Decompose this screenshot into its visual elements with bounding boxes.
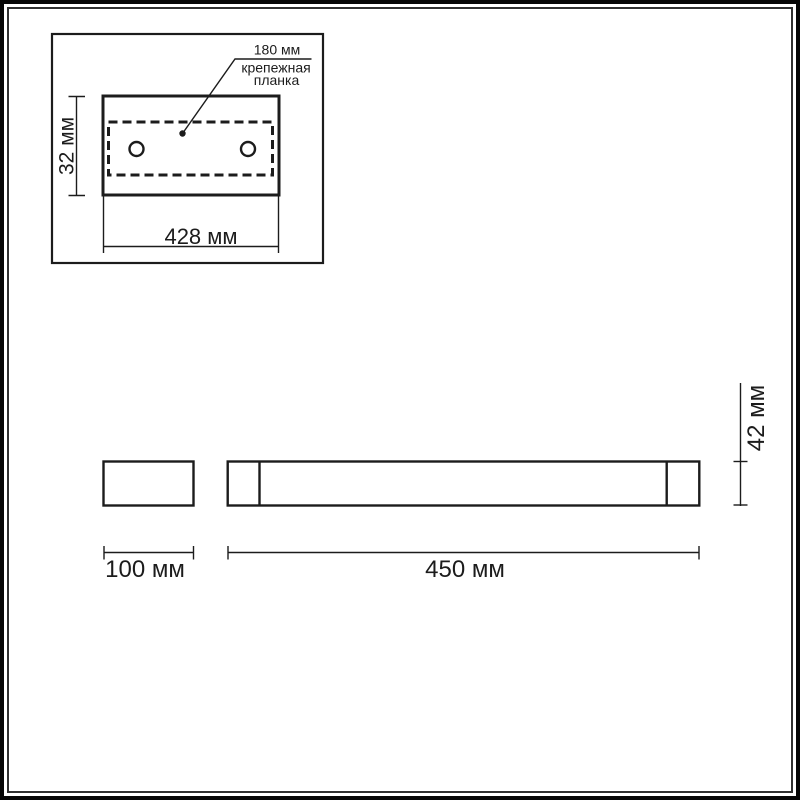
dim-32mm: 32 мм: [56, 97, 86, 196]
side-view-group: 100 мм 450 мм 42 мм: [104, 383, 771, 583]
mounting-plate-label-line2: планка: [254, 72, 300, 88]
dimension-drawing: 180 мм крепежная планка 32 мм 428 мм: [0, 0, 800, 800]
dim-428mm: 428 мм: [104, 196, 279, 253]
dim-100mm-label: 100 мм: [105, 556, 185, 583]
dim-100mm: 100 мм: [104, 546, 194, 583]
dim-428mm-label: 428 мм: [164, 224, 237, 249]
dim-42mm-label: 42 мм: [743, 385, 770, 451]
hole-spacing-dim-label: 180 мм: [254, 42, 301, 58]
side-left-section: [104, 462, 194, 506]
mounting-plate-dashed-outline: [109, 122, 273, 175]
dim-32mm-label: 32 мм: [56, 117, 79, 175]
dim-450mm: 450 мм: [228, 546, 699, 583]
mounting-hole-right: [241, 142, 255, 156]
mounting-hole-left: [130, 142, 144, 156]
dim-450mm-label: 450 мм: [425, 556, 505, 583]
dim-42mm: 42 мм: [734, 383, 771, 506]
technical-drawing-page: 180 мм крепежная планка 32 мм 428 мм: [0, 0, 800, 800]
side-body: [228, 462, 700, 506]
top-view-group: 180 мм крепежная планка 32 мм 428 мм: [52, 34, 323, 263]
